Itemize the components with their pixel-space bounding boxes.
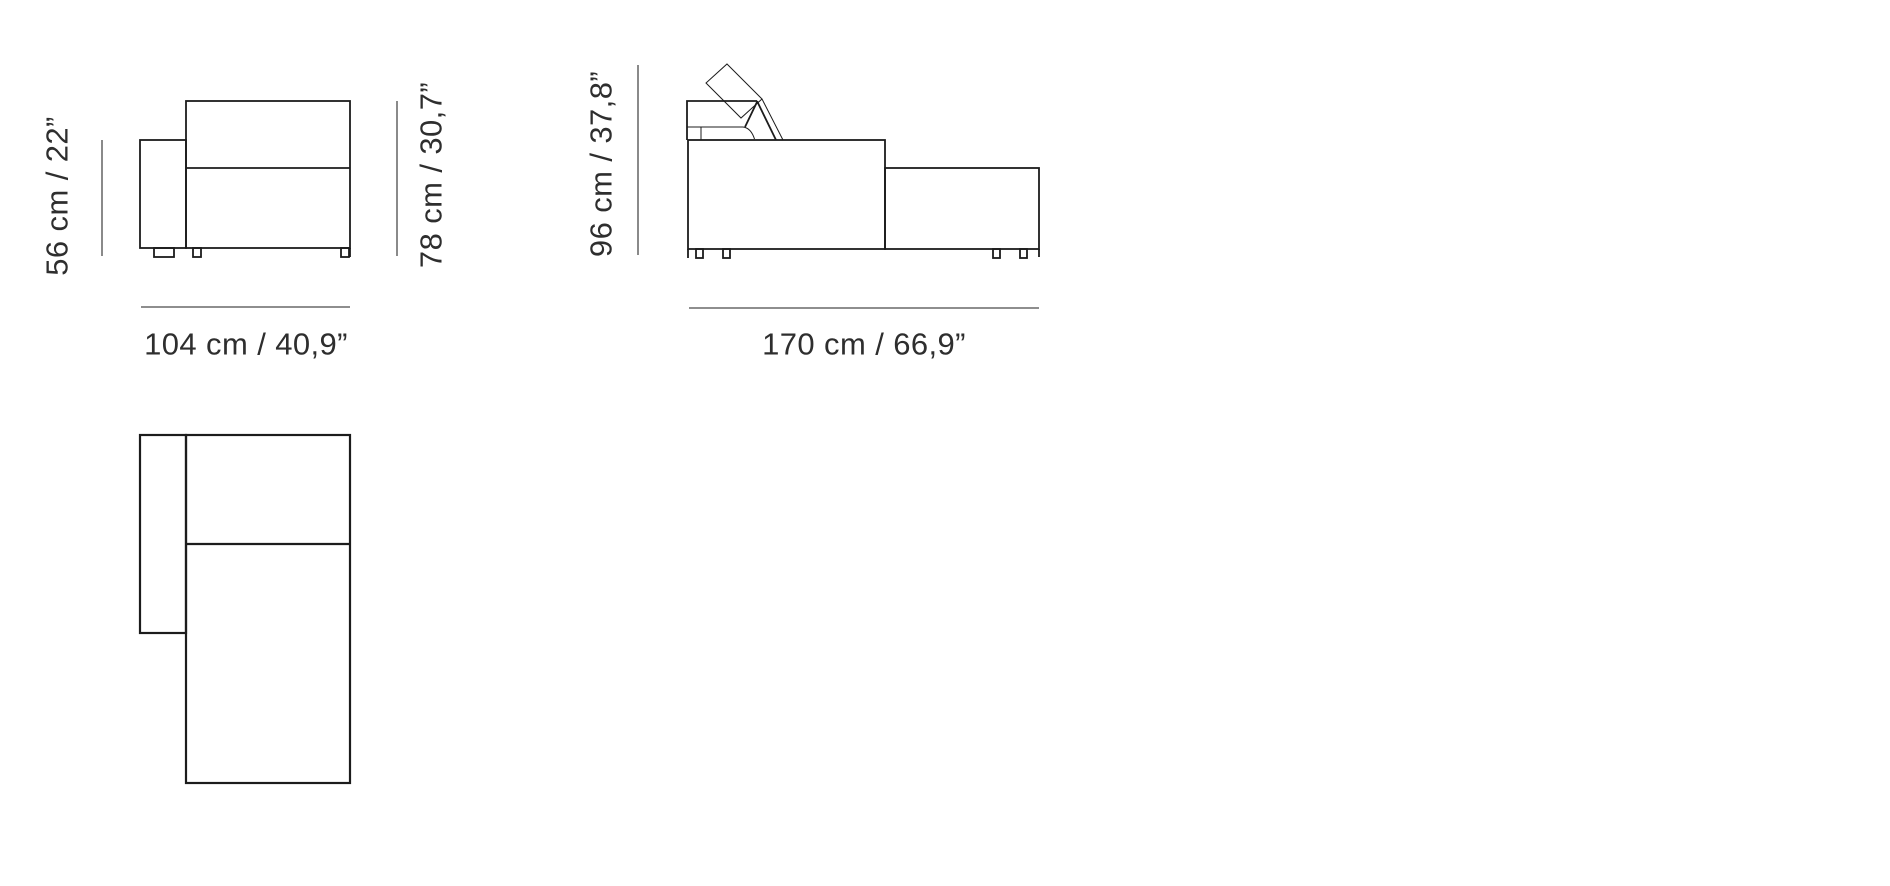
front-body-outline (186, 101, 350, 248)
top-armrest-outline (140, 435, 186, 633)
front-width-label: 104 cm / 40,9” (144, 329, 348, 360)
side-body-outline (688, 140, 885, 249)
side-depth-label: 170 cm / 66,9” (762, 329, 966, 360)
top-view-drawing (140, 435, 350, 783)
side-chaise-outline (885, 168, 1039, 249)
front-armrest-outline (140, 140, 186, 248)
top-body-outline (186, 435, 350, 783)
dimension-diagram: 56 cm / 22” 78 cm / 30,7” 104 cm / 40,9”… (0, 0, 1890, 886)
side-leg-3 (993, 249, 1000, 258)
front-leg-right (341, 248, 349, 257)
front-total-height-label: 78 cm / 30,7” (416, 82, 447, 268)
front-leg-left (154, 248, 174, 257)
side-height-label: 96 cm / 37,8” (586, 71, 617, 257)
side-view-drawing (687, 64, 1039, 258)
front-view-dimension-lines (102, 101, 397, 307)
side-leg-4 (1020, 249, 1027, 258)
side-cushion-line (687, 127, 755, 139)
side-headrest-outline (687, 101, 757, 140)
front-leg-middle (193, 248, 201, 257)
diagram-linework (0, 0, 1890, 886)
front-view-drawing (140, 101, 350, 257)
side-leg-2 (723, 249, 730, 258)
side-leg-1 (696, 249, 703, 258)
front-arm-height-label: 56 cm / 22” (42, 116, 73, 275)
